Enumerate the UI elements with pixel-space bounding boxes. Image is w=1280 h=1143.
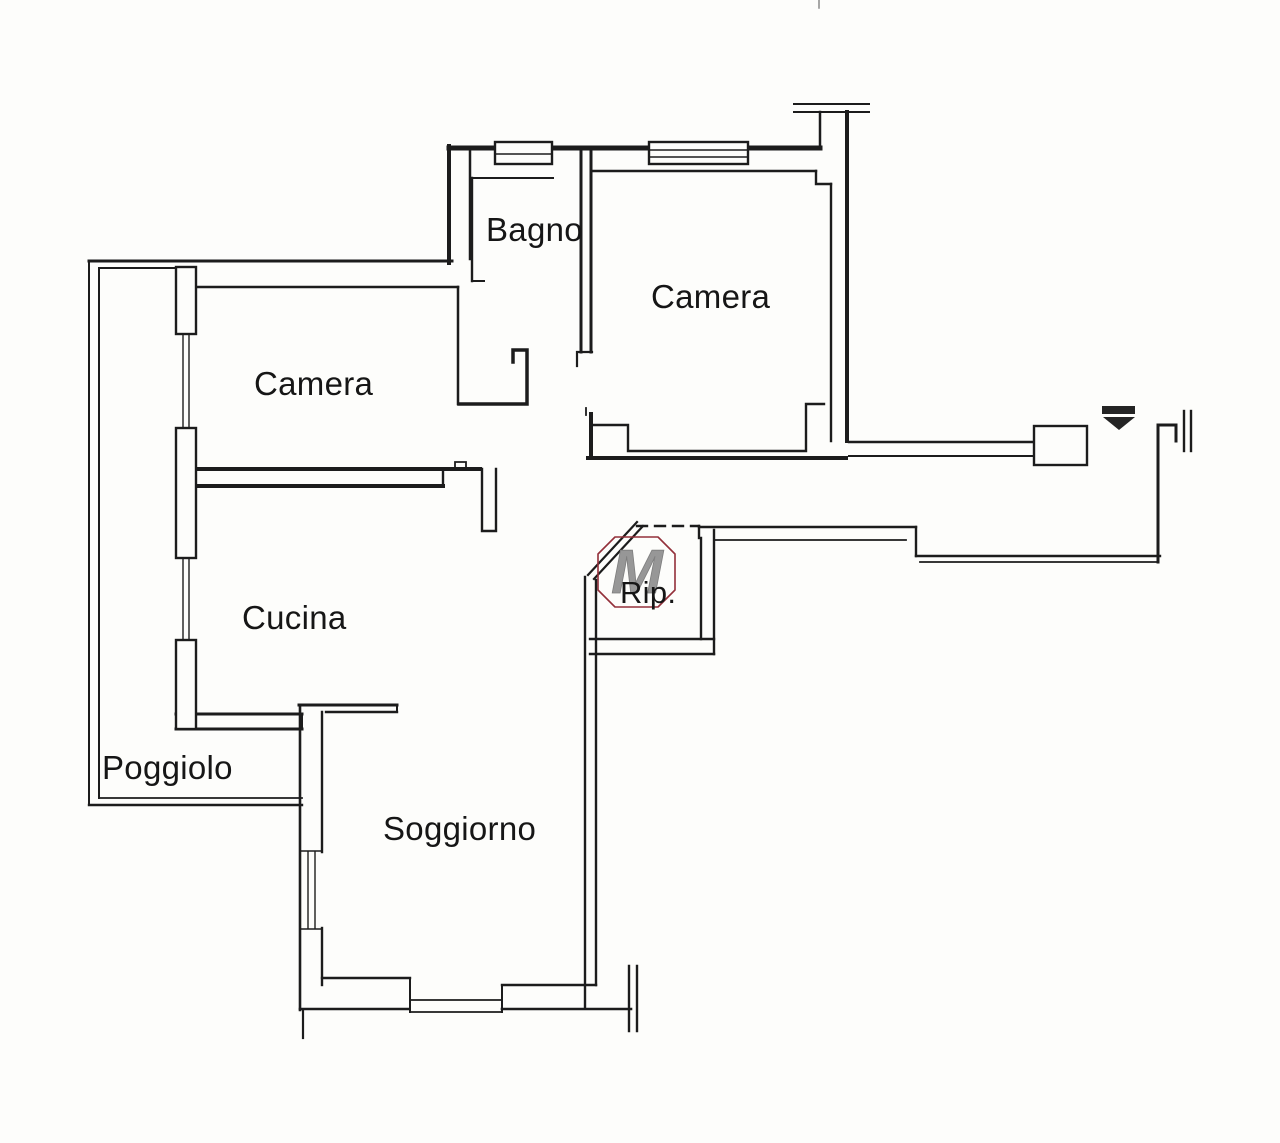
window-bagno-icon [495, 142, 552, 164]
walls-soggiorno [299, 577, 631, 1038]
window-camera-nord-icon [649, 142, 748, 164]
room-label-poggiolo: Poggiolo [102, 751, 233, 784]
room-label-cucina: Cucina [242, 601, 347, 634]
room-label-camera-ovest: Camera [254, 367, 373, 400]
entrance-arrow-icon [1102, 406, 1135, 430]
walls-cucina [176, 462, 496, 729]
exterior-walls [89, 0, 869, 441]
floor-plan-drawing: M [0, 0, 1280, 1143]
west-wall-pillars [176, 267, 196, 729]
room-label-bagno: Bagno [486, 213, 583, 246]
room-label-ripostiglio: Rip. [620, 577, 676, 608]
window-cucina-icon [183, 558, 189, 640]
window-soggiorno-south-icon [410, 1000, 502, 1012]
wall-break-entrance-icon [1184, 411, 1191, 451]
window-soggiorno-west-icon [300, 851, 322, 929]
window-camera-ovest-icon [183, 334, 189, 428]
walls-corridor [637, 425, 1176, 562]
floor-plan: M [0, 0, 1280, 1143]
room-label-camera-nord: Camera [651, 280, 770, 313]
room-label-soggiorno: Soggiorno [383, 812, 536, 845]
wall-break-soggiorno-icon [629, 966, 637, 1031]
